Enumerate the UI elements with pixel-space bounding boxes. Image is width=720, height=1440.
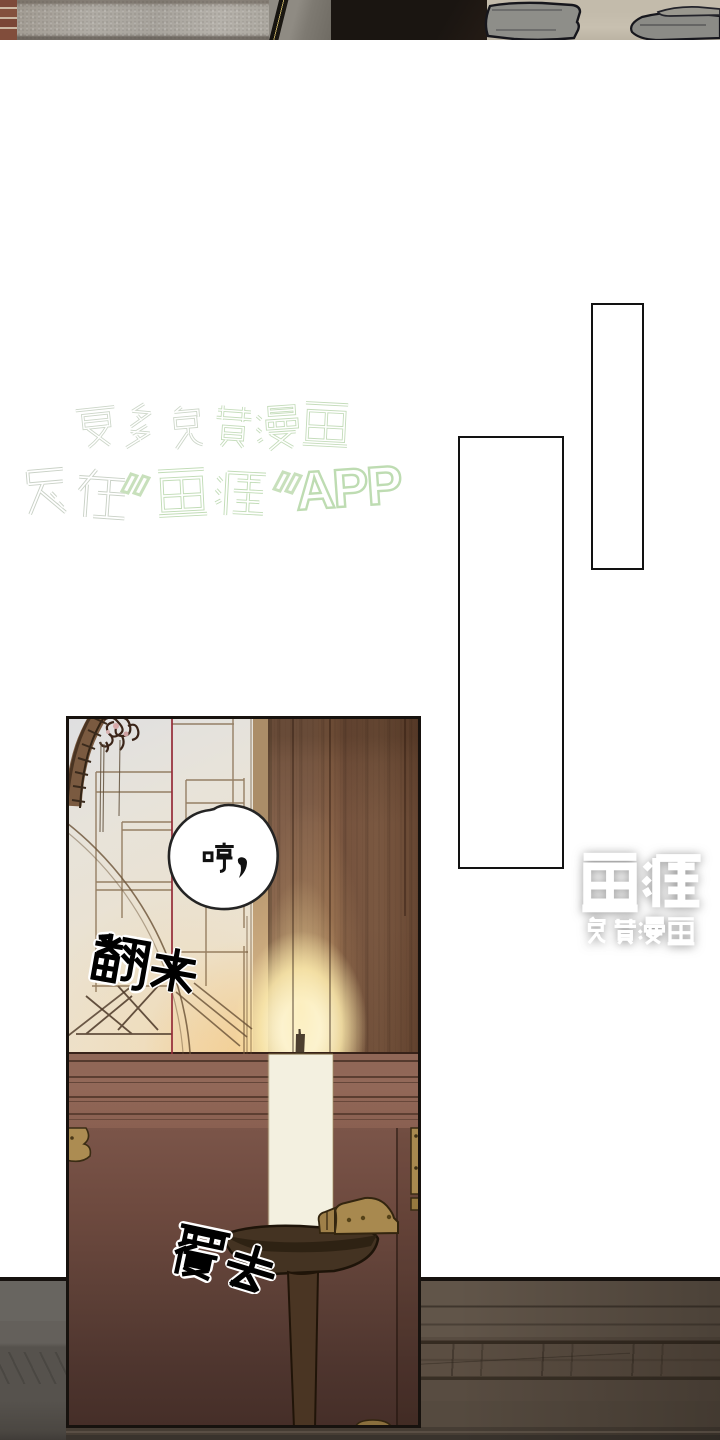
svg-text:APP: APP	[294, 455, 404, 522]
